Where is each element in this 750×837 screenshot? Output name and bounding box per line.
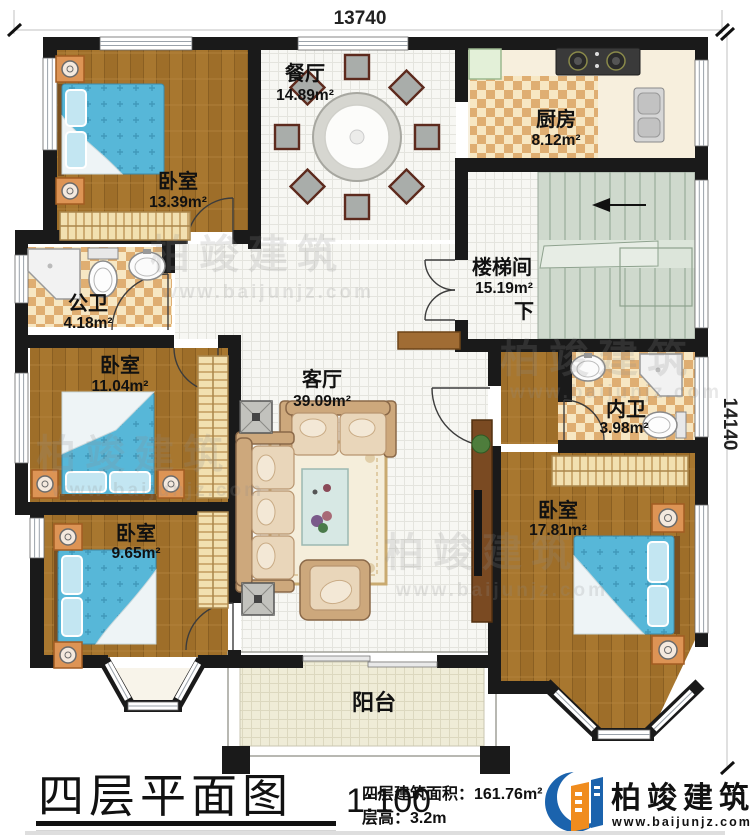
svg-text:www.baijunjz.com: www.baijunjz.com — [395, 580, 608, 601]
dimension-top-value: 13740 — [334, 8, 387, 29]
watermark: 柏竣建筑 www.baijunjz.com — [36, 433, 264, 501]
console-table — [398, 332, 460, 349]
dimension-top: 13740 — [8, 8, 729, 36]
window — [298, 37, 408, 50]
room-area-ensuite-bath: 3.98m² — [599, 420, 648, 437]
room-label-living: 客厅 — [301, 367, 342, 391]
brand-logo-icon — [545, 770, 611, 832]
stairs-down-label: 下 — [514, 301, 534, 323]
room-label-bedroom-ml: 卧室 — [100, 353, 140, 377]
room-label-balcony: 阳台 — [352, 690, 396, 715]
window — [695, 60, 708, 146]
dimension-right: 14140 — [719, 28, 740, 774]
stove — [556, 48, 640, 75]
room-area-dining: 14.89m² — [276, 87, 334, 104]
armchair — [300, 560, 370, 620]
room-area-bedroom-br: 17.81m² — [529, 522, 587, 539]
room-area-bedroom-bl: 9.65m² — [111, 545, 160, 562]
floor-plan-canvas: 柏竣建筑 www.baijunjz.com 柏竣建筑 www.baijunjz.… — [0, 0, 750, 837]
window — [695, 505, 708, 633]
room-area-bedroom-tl: 13.39m² — [149, 194, 207, 211]
room-area-kitchen: 8.12m² — [531, 132, 580, 149]
window — [695, 180, 708, 328]
balcony-column-left — [222, 746, 250, 774]
svg-text:www.baijunjz.com: www.baijunjz.com — [161, 282, 374, 303]
window — [30, 518, 44, 558]
floor-area-text: 四层建筑面积：161.76m² — [362, 784, 543, 803]
svg-text:柏竣建筑: 柏竣建筑 — [500, 337, 696, 381]
room-label-kitchen: 厨房 — [536, 107, 576, 131]
brand-logo: 柏竣建筑 www.baijunjz.com — [545, 770, 750, 832]
window — [15, 255, 28, 303]
plant — [472, 435, 490, 453]
room-area-bedroom-ml: 11.04m² — [92, 378, 149, 395]
svg-text:www.baijunjz.com: www.baijunjz.com — [51, 480, 264, 501]
brand-logo-name: 柏竣建筑 — [611, 781, 750, 815]
watermark: 柏竣建筑 www.baijunjz.com — [150, 233, 374, 303]
room-area-stairwell: 15.19m² — [475, 280, 533, 297]
kitchen-cabinet — [469, 49, 501, 79]
watermark: 柏竣建筑 www.baijunjz.com — [500, 337, 722, 403]
window — [100, 37, 192, 50]
room-label-dining: 餐厅 — [285, 61, 325, 85]
coffee-table — [302, 469, 348, 545]
bottom-rule — [25, 831, 725, 835]
plan-title: 四层平面图 — [38, 771, 293, 822]
speaker — [240, 401, 272, 433]
room-area-living: 39.09m² — [293, 393, 351, 410]
room-label-bedroom-br: 卧室 — [538, 498, 578, 522]
room-label-public-bath: 公卫 — [68, 292, 108, 315]
window — [15, 373, 28, 463]
floor-plan-drawing: 柏竣建筑 www.baijunjz.com 柏竣建筑 www.baijunjz.… — [0, 0, 750, 837]
dimension-right-value: 14140 — [719, 398, 740, 451]
brand-logo-url: www.baijunjz.com — [611, 815, 750, 829]
title-block: 四层平面图 1:100 四层建筑面积：161.76m² 层高：3.2m 柏竣建筑… — [25, 770, 750, 835]
kitchen-sink — [634, 88, 664, 142]
floor-height-text: 层高：3.2m — [362, 808, 446, 827]
toilet — [643, 412, 686, 438]
room-label-stairwell: 楼梯间 — [472, 255, 532, 279]
sofa — [236, 432, 294, 592]
speaker — [242, 583, 274, 615]
toilet — [88, 248, 118, 297]
room-label-bedroom-bl: 卧室 — [116, 521, 156, 545]
watermark: 柏竣建筑 www.baijunjz.com — [384, 531, 608, 601]
window — [43, 58, 57, 150]
room-label-bedroom-tl: 卧室 — [158, 169, 198, 193]
svg-text:柏竣建筑: 柏竣建筑 — [150, 233, 346, 277]
svg-text:柏竣建筑: 柏竣建筑 — [36, 433, 232, 477]
room-label-ensuite-bath: 内卫 — [606, 397, 646, 421]
balcony-column-right — [480, 746, 510, 774]
room-area-public-bath: 4.18m² — [63, 315, 112, 332]
